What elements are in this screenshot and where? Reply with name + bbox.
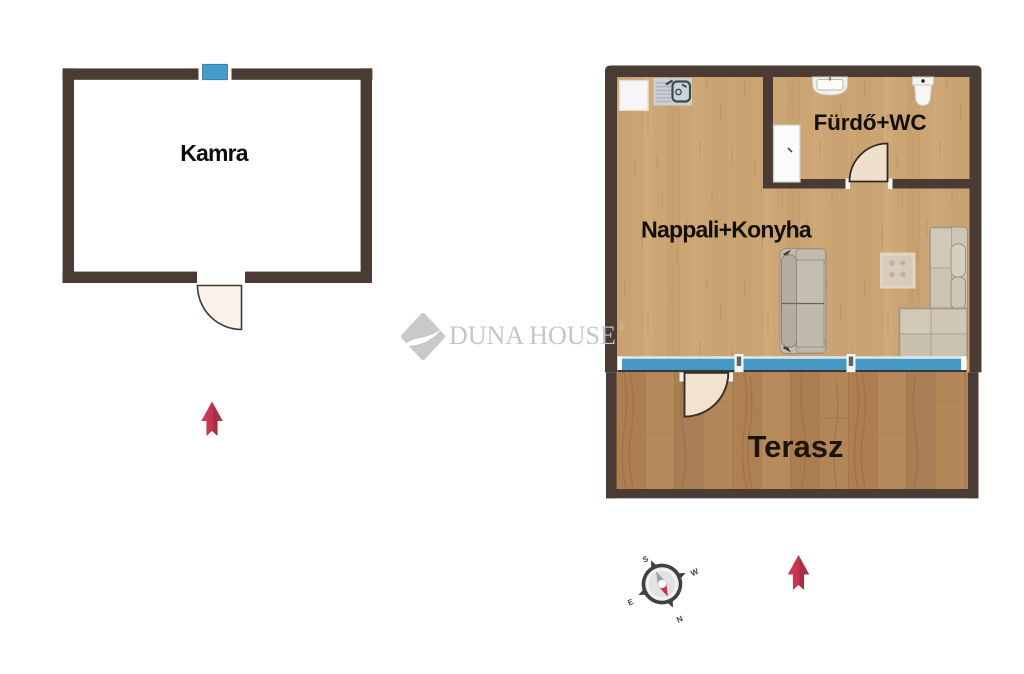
svg-text:E: E — [626, 597, 635, 608]
svg-text:®: ® — [618, 322, 626, 333]
svg-text:Nappali+Konyha: Nappali+Konyha — [641, 217, 812, 243]
svg-text:N: N — [675, 614, 684, 625]
svg-text:DUNA HOUSE: DUNA HOUSE — [449, 321, 616, 350]
svg-text:W: W — [689, 566, 700, 578]
svg-text:Kamra: Kamra — [180, 140, 249, 166]
svg-text:Fürdő+WC: Fürdő+WC — [814, 110, 927, 135]
svg-text:S: S — [641, 554, 650, 565]
svg-text:Terasz: Terasz — [748, 429, 844, 464]
